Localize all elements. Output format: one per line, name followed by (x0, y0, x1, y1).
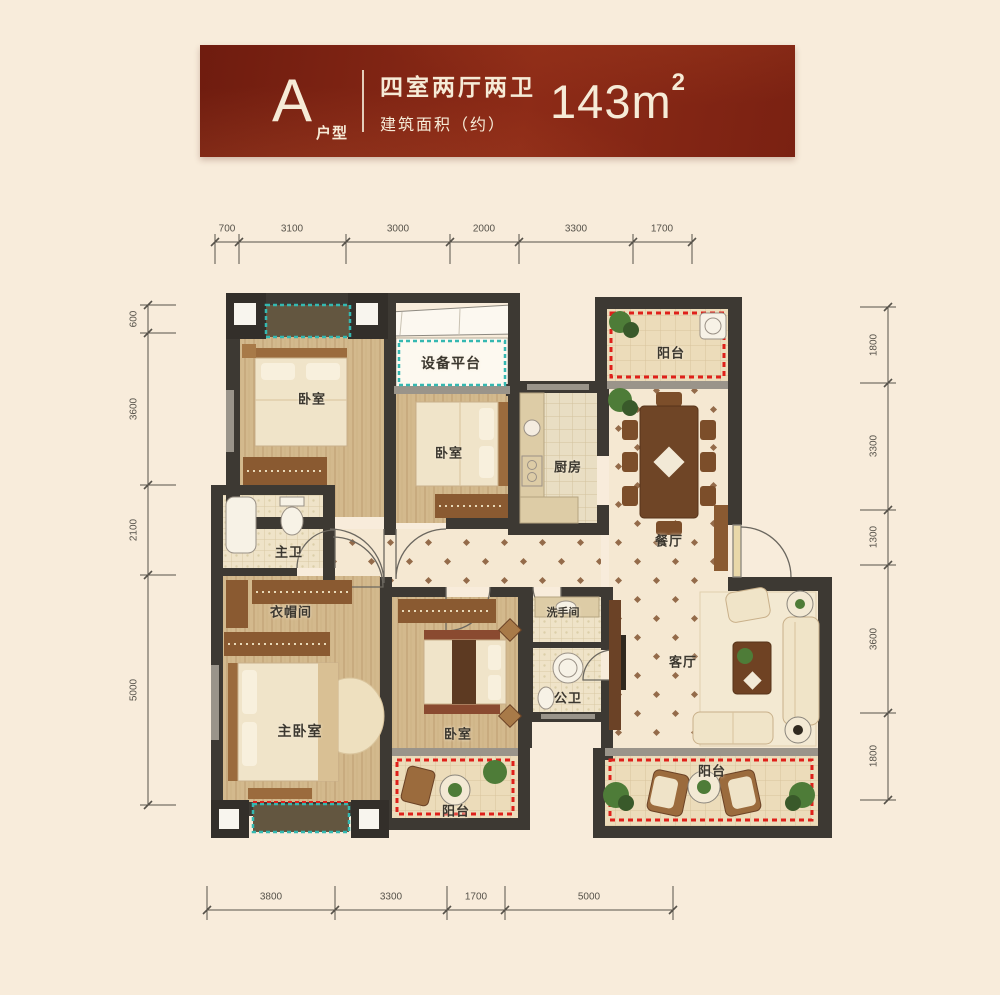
room-label-guest-bathroom: 公卫 (554, 688, 582, 707)
dim-left-2: 2100 (129, 519, 140, 541)
wardrobe-top-middle (435, 494, 508, 518)
room-label-washroom: 洗手间 (547, 604, 580, 620)
dim-top-4: 3300 (565, 224, 587, 235)
dim-bottom-1: 3300 (380, 892, 402, 903)
dim-right-2: 1300 (869, 526, 880, 548)
room-label-bedroom-top-left: 卧室 (298, 389, 326, 408)
room-label-master-bedroom: 主卧室 (278, 721, 323, 741)
dim-top-0: 700 (219, 224, 236, 235)
dim-bottom-3: 5000 (578, 892, 600, 903)
area-label: 建筑面积（约） (380, 111, 536, 135)
dim-right-0: 1800 (869, 334, 880, 356)
room-label-living: 客厅 (669, 652, 697, 671)
room-label-cloakroom: 衣帽间 (270, 602, 312, 621)
room-label-balcony-bottom-right: 阳台 (698, 761, 726, 780)
room-label-balcony-bottom-middle: 阳台 (442, 801, 470, 820)
dim-bottom-2: 1700 (465, 892, 487, 903)
room-label-equipment-platform: 设备平台 (421, 353, 481, 373)
banner-divider (362, 70, 364, 132)
bay-window-top-left (266, 305, 350, 337)
entry-cabinet (714, 505, 728, 571)
area-superscript: 2 (672, 69, 686, 96)
dim-top-5: 1700 (651, 224, 673, 235)
dim-left-3: 5000 (129, 679, 140, 701)
dim-left-0: 600 (129, 311, 140, 328)
dim-top-3: 2000 (473, 224, 495, 235)
wardrobe-bottom (398, 599, 496, 623)
room-label-balcony-top: 阳台 (657, 343, 685, 362)
type-banner: A 户型 四室两厅两卫 建筑面积（约） 143m2 (200, 45, 795, 157)
area-value: 143m2 (550, 74, 686, 129)
room-label-dining: 餐厅 (655, 531, 683, 550)
dim-top-2: 3000 (387, 224, 409, 235)
room-label-bedroom-top-middle: 卧室 (435, 443, 463, 462)
type-letter: A (272, 71, 312, 131)
layout-description: 四室两厅两卫 (380, 68, 536, 102)
room-label-master-bathroom: 主卫 (275, 542, 303, 561)
dim-top-1: 3100 (281, 224, 303, 235)
bay-window-bottom-left (253, 804, 349, 832)
wardrobe-top-left (243, 457, 327, 485)
type-letter-suffix: 户型 (316, 122, 348, 143)
equipment-canopy (390, 305, 516, 336)
bed-top-left (242, 344, 347, 446)
dim-right-1: 3300 (869, 435, 880, 457)
dim-right-3: 3600 (869, 628, 880, 650)
dim-bottom-0: 3800 (260, 892, 282, 903)
banner-text-lines: 四室两厅两卫 建筑面积（约） (380, 68, 536, 135)
room-label-kitchen: 厨房 (554, 457, 582, 476)
dim-left-1: 3600 (129, 398, 140, 420)
dim-right-4: 1800 (869, 745, 880, 767)
room-label-bedroom-bottom: 卧室 (444, 724, 472, 743)
